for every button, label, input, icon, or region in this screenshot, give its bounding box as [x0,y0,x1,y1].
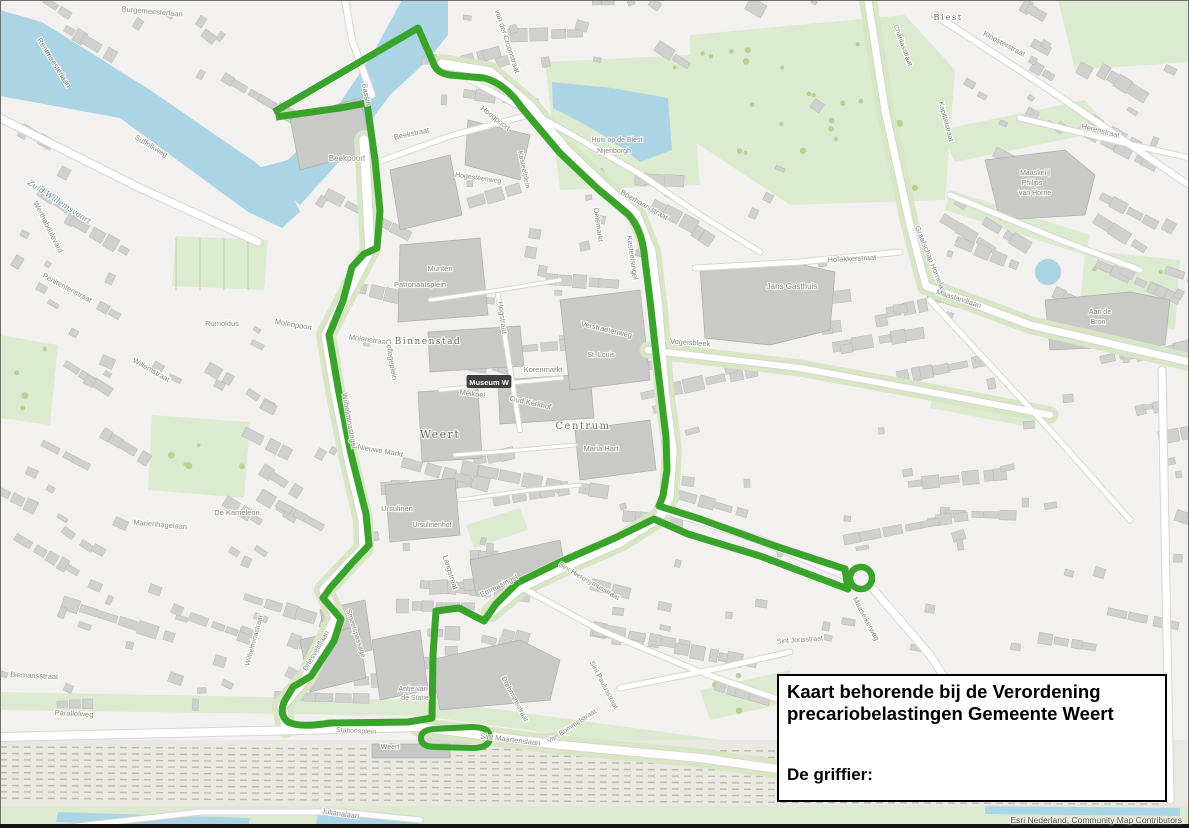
street-label: Stationsplein [336,727,377,736]
street-label: Nieuwe Markt [357,442,405,459]
place-label: Centrum [555,421,610,432]
street-label: Munten [427,264,452,273]
street-label: Burgemeesterlaan [121,4,183,18]
street-label: Biemansstraat [10,670,59,682]
place-label: Binnenstad [395,337,462,347]
street-label: Hofakkerstraat [827,253,877,265]
street-label: Marienhagelaan [133,518,187,532]
street-label: Nijenborgh [597,148,631,155]
street-label: Ursulinen [381,504,413,513]
street-label: Huis op de Biest [592,137,643,144]
street-label: Parallelweg [55,708,94,719]
street-label: Bron [1091,319,1106,326]
map-title-line1: Kaart behorende bij de Verordening [787,681,1157,703]
street-label: Korenmarkt [524,365,564,374]
street-label: Patronaatsplein [394,280,446,289]
map-canvas: BurgemeesterlaanRentmeesterlaanZuid-Will… [0,0,1189,828]
street-label: Jans Gasthuis [767,282,818,291]
street-label: Molenpoort [274,317,313,333]
street-label: De Kameleon [214,508,259,517]
street-label: Antje van [398,686,427,693]
street-label: Rumoldus [205,319,239,328]
street-label: Willemstraat [131,356,172,385]
attribution-text: Esri Nederland, Community Map Contributo… [1011,815,1182,825]
map-title-line2: precariobelastingen Gemeente Weert [787,703,1157,725]
street-label: van Horne [1019,190,1051,197]
street-label: Ursulinenhof [412,522,451,529]
street-label: Sint Hieronymusstraat [557,561,620,602]
street-label: St. Louis [587,352,615,359]
street-label: Maria Hart [583,444,619,453]
street-label: Oelemarkt [592,207,606,243]
place-label: Biest [933,13,962,23]
place-label: Weert [420,428,461,441]
map-title-box: Kaart behorende bij de Verordening preca… [777,674,1167,802]
street-label: Maaseikerweg [851,595,882,642]
street-label: Maaskei | [1020,170,1050,177]
street-label: de Statie [401,695,429,702]
street-label: Sint Paulusstraat [588,660,619,710]
signature-label: De griffier: [787,765,1157,785]
museum-badge-label: Museum W [469,378,510,387]
zone-boundary-roundabout [850,567,872,589]
street-label: Weert [381,744,400,751]
street-label: Beekpoort [329,154,366,163]
street-label: Beekstraat [393,125,431,141]
street-label: Sint Jorisstraat [777,635,824,645]
street-label: Aan de [1089,309,1111,316]
street-label: Hogesteenweg [455,172,502,185]
street-label: Philips [1022,180,1043,187]
